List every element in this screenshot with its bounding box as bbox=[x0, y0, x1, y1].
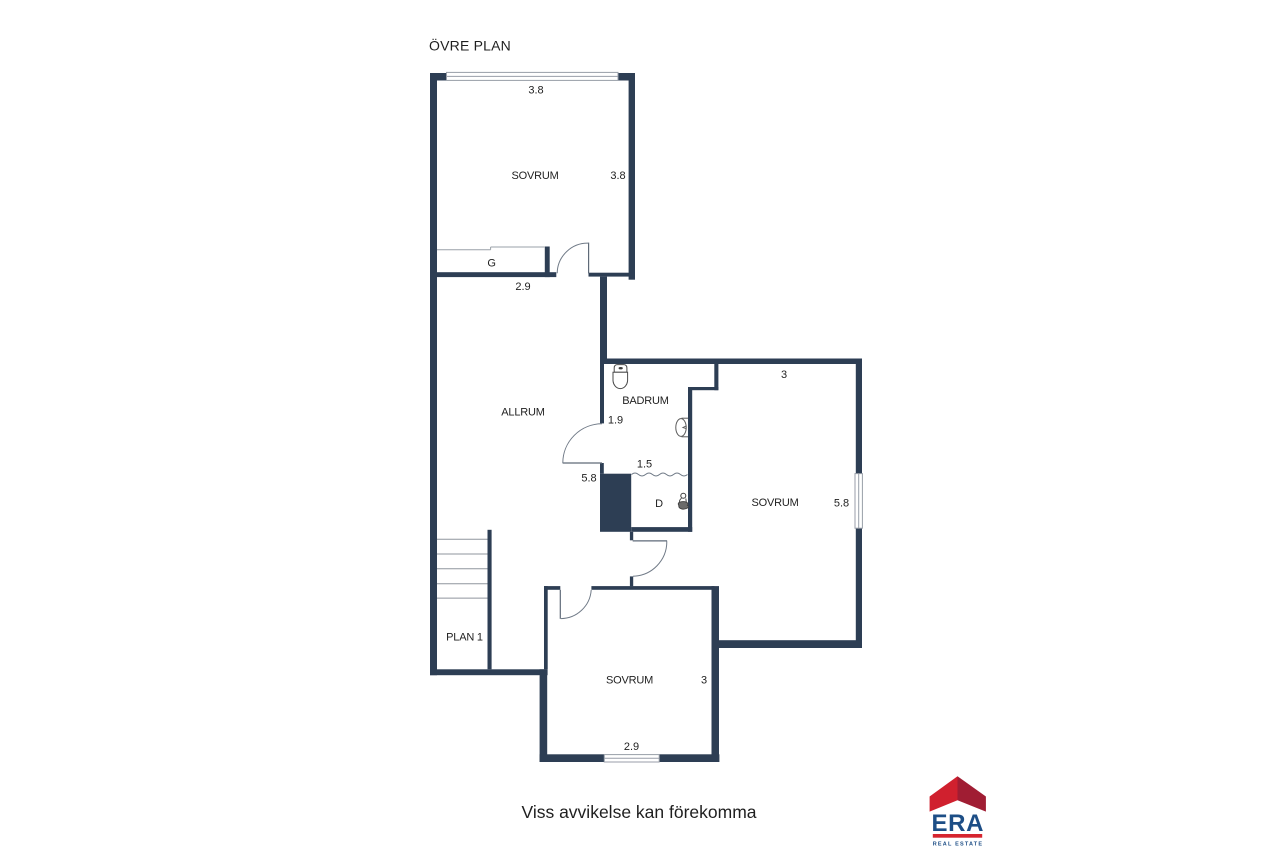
svg-text:D: D bbox=[655, 498, 663, 510]
svg-text:3.8: 3.8 bbox=[610, 170, 625, 182]
svg-text:3: 3 bbox=[701, 675, 707, 687]
svg-text:1.5: 1.5 bbox=[637, 459, 652, 471]
svg-text:ÖVRE PLAN: ÖVRE PLAN bbox=[429, 37, 511, 54]
svg-text:ALLRUM: ALLRUM bbox=[501, 407, 544, 419]
svg-text:SOVRUM: SOVRUM bbox=[751, 497, 798, 509]
svg-text:ERA: ERA bbox=[932, 810, 984, 837]
svg-text:5.8: 5.8 bbox=[581, 473, 596, 485]
svg-text:2.9: 2.9 bbox=[624, 741, 639, 753]
svg-text:SOVRUM: SOVRUM bbox=[511, 170, 558, 182]
svg-text:REAL ESTATE: REAL ESTATE bbox=[933, 841, 983, 847]
svg-text:Viss avvikelse kan förekomma: Viss avvikelse kan förekomma bbox=[521, 802, 756, 822]
svg-text:3.8: 3.8 bbox=[528, 85, 543, 97]
svg-text:SOVRUM: SOVRUM bbox=[606, 675, 653, 687]
svg-text:1.9: 1.9 bbox=[608, 414, 623, 426]
svg-text:BADRUM: BADRUM bbox=[622, 395, 669, 407]
svg-text:5.8: 5.8 bbox=[834, 497, 849, 509]
svg-text:G: G bbox=[487, 257, 495, 269]
svg-text:3: 3 bbox=[781, 369, 787, 381]
svg-text:2.9: 2.9 bbox=[515, 281, 530, 293]
svg-text:PLAN 1: PLAN 1 bbox=[446, 632, 483, 644]
